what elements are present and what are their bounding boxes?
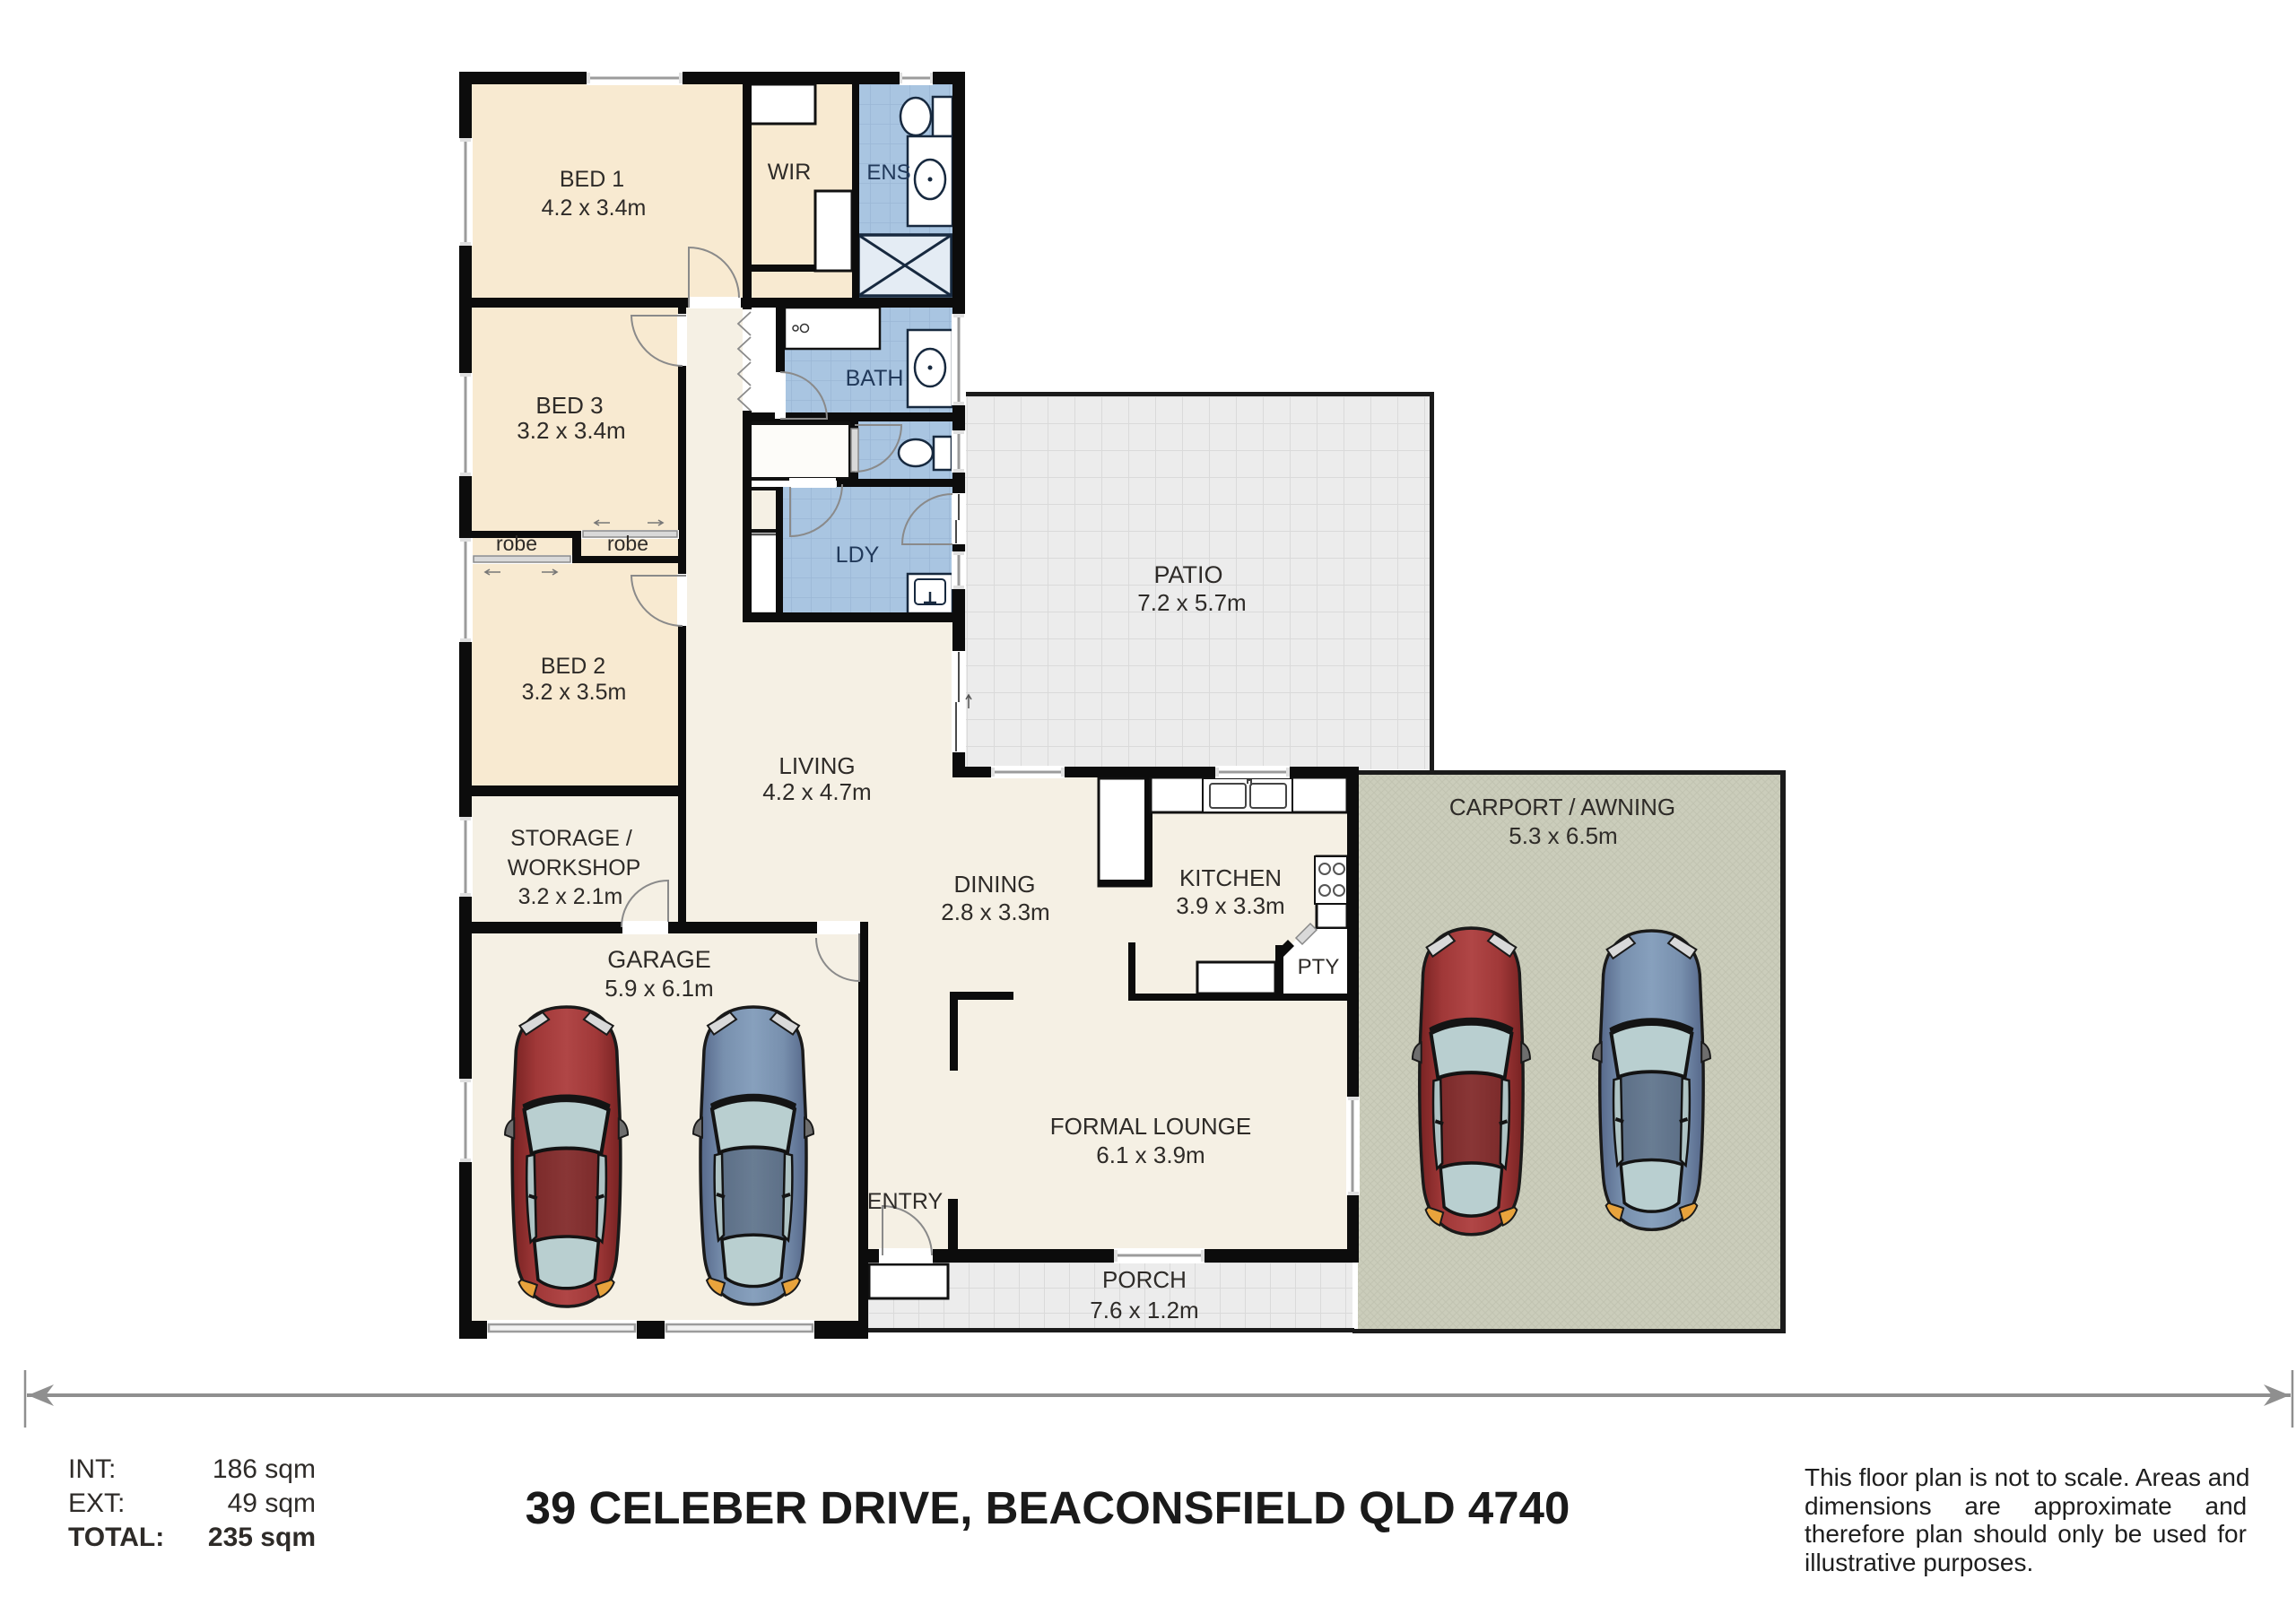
svg-text:5.9 x 6.1m: 5.9 x 6.1m [604,975,713,1002]
svg-text:This floor plan is not to scal: This floor plan is not to scale. Areas a… [1805,1463,2250,1491]
svg-text:186 sqm: 186 sqm [213,1454,316,1484]
svg-text:5.3 x 6.5m: 5.3 x 6.5m [1509,822,1617,849]
svg-text:BED 2: BED 2 [541,654,605,679]
svg-text:3.9 x 3.3m: 3.9 x 3.3m [1176,892,1284,919]
svg-text:3.2 x 2.1m: 3.2 x 2.1m [518,884,623,909]
svg-text:dimensions are approximate and: dimensions are approximate and [1805,1492,2247,1520]
svg-text:BATH: BATH [846,366,904,391]
svg-text:STORAGE /: STORAGE / [510,826,632,851]
svg-text:ENTRY: ENTRY [867,1189,944,1214]
svg-text:4.2 x 4.7m: 4.2 x 4.7m [762,778,871,805]
svg-text:3.2 x 3.4m: 3.2 x 3.4m [517,417,625,444]
svg-text:ENS: ENS [866,161,910,185]
svg-text:PORCH: PORCH [1102,1266,1187,1293]
svg-text:3.2 x 3.5m: 3.2 x 3.5m [522,680,627,705]
svg-text:DINING: DINING [954,871,1036,898]
svg-text:EXT:: EXT: [68,1488,125,1518]
svg-text:robe: robe [607,532,648,555]
svg-text:7.2 x 5.7m: 7.2 x 5.7m [1137,589,1246,616]
svg-text:robe: robe [496,532,537,555]
svg-text:INT:: INT: [68,1454,116,1484]
svg-text:WORKSHOP: WORKSHOP [508,855,641,881]
svg-text:CARPORT / AWNING: CARPORT / AWNING [1449,794,1675,820]
svg-text:7.6 x 1.2m: 7.6 x 1.2m [1090,1297,1198,1324]
svg-text:39 CELEBER DRIVE, BEACONSFIELD: 39 CELEBER DRIVE, BEACONSFIELD QLD 4740 [526,1482,1570,1533]
svg-text:BED 3: BED 3 [535,392,603,419]
svg-text:PATIO: PATIO [1153,561,1222,588]
svg-text:4.2 x 3.4m: 4.2 x 3.4m [542,195,647,221]
svg-text:2.8 x 3.3m: 2.8 x 3.3m [941,898,1049,925]
svg-text:6.1 x 3.9m: 6.1 x 3.9m [1096,1141,1205,1168]
svg-text:TOTAL:: TOTAL: [68,1523,164,1552]
svg-text:KITCHEN: KITCHEN [1179,864,1282,891]
svg-text:LIVING: LIVING [778,752,855,779]
svg-text:illustrative purposes.: illustrative purposes. [1805,1549,2033,1576]
svg-text:WIR: WIR [768,160,812,185]
svg-text:LDY: LDY [836,542,880,568]
svg-text:BED 1: BED 1 [560,167,624,192]
svg-text:49 sqm: 49 sqm [228,1488,316,1518]
svg-text:GARAGE: GARAGE [607,946,711,973]
svg-text:PTY: PTY [1298,955,1340,979]
svg-text:FORMAL LOUNGE: FORMAL LOUNGE [1050,1113,1251,1140]
svg-text:therefore plan should only be: therefore plan should only be used for [1805,1520,2247,1548]
svg-text:235 sqm: 235 sqm [208,1523,316,1552]
